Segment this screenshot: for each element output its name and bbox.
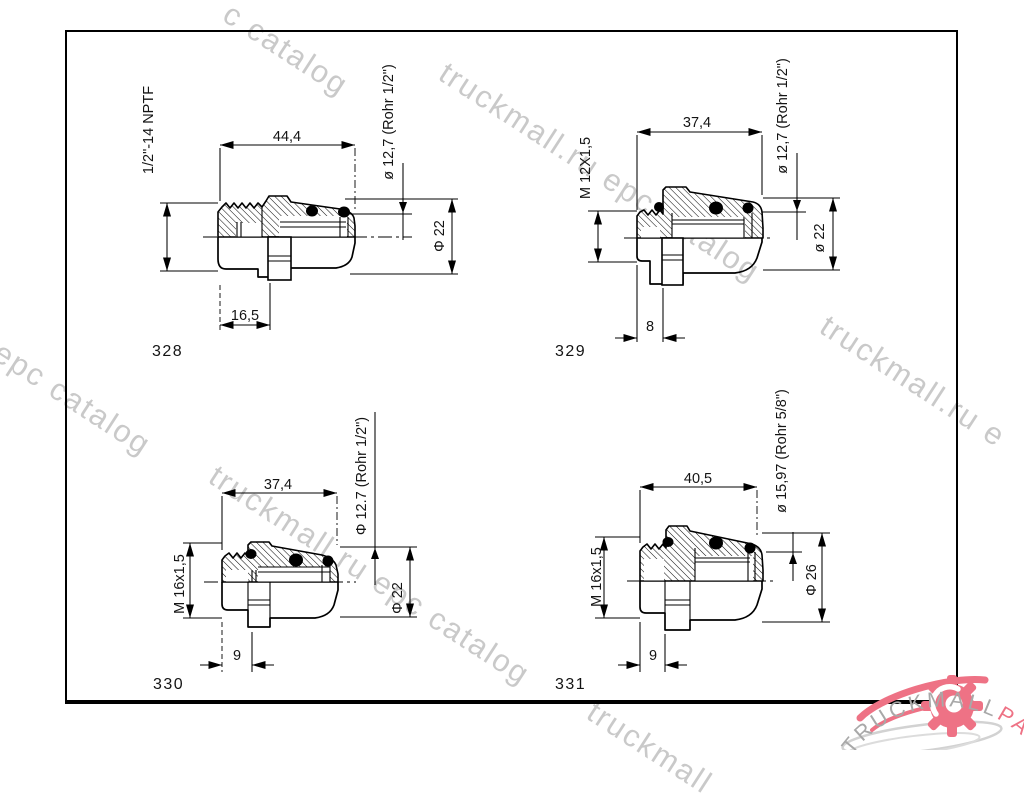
drawing-331: M 16x1,5 40,5 ø 15,97 (Rohr 5/8") Φ 26 9… [555, 389, 830, 693]
dim-length2-331: 9 [649, 648, 657, 664]
o-ring [289, 554, 303, 567]
dim-length-329: 37,4 [683, 115, 711, 131]
dim-length-328: 44,4 [273, 129, 301, 145]
part-number-330: 330 [153, 676, 184, 693]
dim-od-329: ø 22 [812, 223, 828, 252]
dim-thread-329: M 12X1,5 [578, 137, 594, 199]
dim-tube-328: ø 12,7 (Rohr 1/2") [381, 64, 397, 180]
part-number-329: 329 [555, 343, 586, 360]
tube-stub [662, 238, 683, 285]
o-ring [709, 202, 723, 215]
dim-length2-329: 8 [646, 319, 654, 335]
drawing-328: 1/2"-14 NPTF 44,4 ø 12,7 (Rohr 1/2") Φ 2… [141, 64, 458, 360]
o-ring [663, 537, 674, 547]
dim-tube-330: Φ 12.7 (Rohr 1/2") [354, 417, 370, 535]
dim-length-331: 40,5 [684, 471, 712, 487]
o-ring [323, 556, 334, 567]
o-ring [306, 206, 318, 217]
part-number-328: 328 [152, 343, 183, 360]
o-ring [743, 203, 754, 214]
drawing-330: M 16x1,5 37,4 Φ 12.7 (Rohr 1/2") Φ 22 9 … [153, 412, 417, 693]
dim-tube-329: ø 12,7 (Rohr 1/2") [775, 58, 791, 174]
dim-od-331: Φ 26 [804, 564, 820, 596]
o-ring [654, 202, 664, 212]
part-number-331: 331 [555, 676, 586, 693]
o-ring [745, 543, 756, 554]
dim-length2-330: 9 [233, 648, 241, 664]
dim-thread-328: 1/2"-14 NPTF [141, 86, 157, 174]
dim-od-328: Φ 22 [432, 220, 448, 252]
dim-thread-330: M 16x1,5 [172, 554, 188, 614]
dim-od-330: Φ 22 [390, 582, 406, 614]
o-ring [338, 207, 350, 218]
dim-tube-331: ø 15,97 (Rohr 5/8") [774, 389, 790, 513]
drawing-canvas: 1/2"-14 NPTF 44,4 ø 12,7 (Rohr 1/2") Φ 2… [0, 0, 1024, 750]
dim-length2-328: 16,5 [231, 308, 259, 324]
drawing-329: M 12X1,5 37,4 ø 12,7 (Rohr 1/2") ø 22 8 … [555, 58, 840, 360]
dim-thread-331: M 16x1,5 [589, 547, 605, 607]
o-ring [709, 537, 723, 550]
o-ring [246, 549, 257, 559]
tube-stub [268, 237, 291, 280]
dim-length-330: 37,4 [264, 477, 292, 493]
